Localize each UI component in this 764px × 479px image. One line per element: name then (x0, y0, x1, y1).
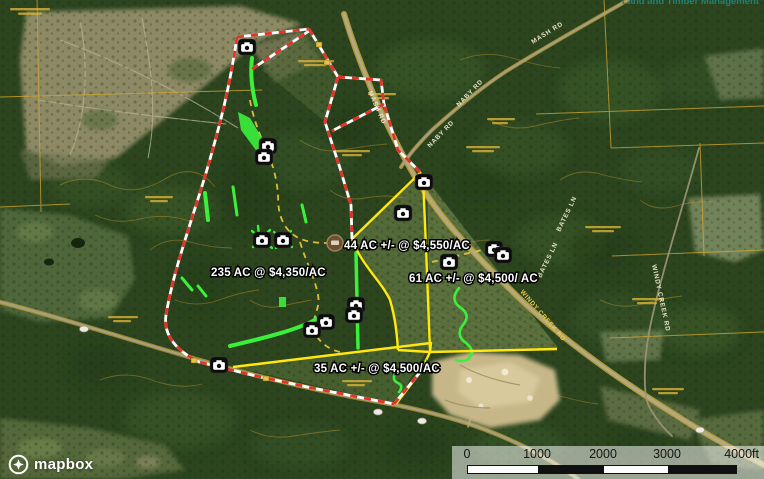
scale-bar: 0 1000 2000 3000 4000ft (452, 446, 764, 479)
scale-tick-4000ft: 4000ft (724, 447, 759, 461)
trail-camera-icon[interactable] (415, 174, 433, 190)
mapbox-logo[interactable]: mapbox (8, 454, 93, 475)
trail-camera-icon[interactable] (345, 307, 363, 323)
trail-camera-icon[interactable] (238, 39, 256, 55)
trail-camera-icon[interactable] (303, 322, 321, 338)
scale-tick-0: 0 (464, 447, 471, 461)
trail-camera-icon[interactable] (440, 254, 458, 270)
scale-tick-1000: 1000 (523, 447, 551, 461)
scale-tick-3000: 3000 (653, 447, 681, 461)
trail-camera-icon[interactable] (394, 205, 412, 221)
scale-bar-segments (467, 465, 737, 474)
map-viewport[interactable]: NABY RD NABY RD MASH RD MASH RD BATES LN… (0, 0, 764, 479)
parcel-price-label-44: 44 AC +/- @ $4,550/AC (344, 240, 470, 252)
trail-camera-icon[interactable] (274, 232, 292, 248)
satellite-map[interactable]: NABY RD NABY RD MASH RD MASH RD BATES LN… (0, 0, 764, 479)
map-attribution-link[interactable]: Land and Timber Management (622, 0, 759, 7)
scale-tick-2000: 2000 (589, 447, 617, 461)
mapbox-icon (8, 454, 29, 475)
trail-camera-icon[interactable] (255, 149, 273, 165)
parcel-price-label-235: 235 AC @ $4,350/AC (211, 267, 326, 279)
trail-camera-icon[interactable] (210, 357, 228, 373)
mapbox-wordmark: mapbox (34, 456, 93, 473)
parcel-price-label-35: 35 AC +/- @ $4,500/AC (314, 363, 440, 375)
poi-marker[interactable] (327, 235, 343, 251)
parcel-price-label-61: 61 AC +/- @ $4,500/ AC (409, 273, 538, 285)
trail-camera-icon[interactable] (253, 232, 271, 248)
trail-camera-icon[interactable] (494, 247, 512, 263)
